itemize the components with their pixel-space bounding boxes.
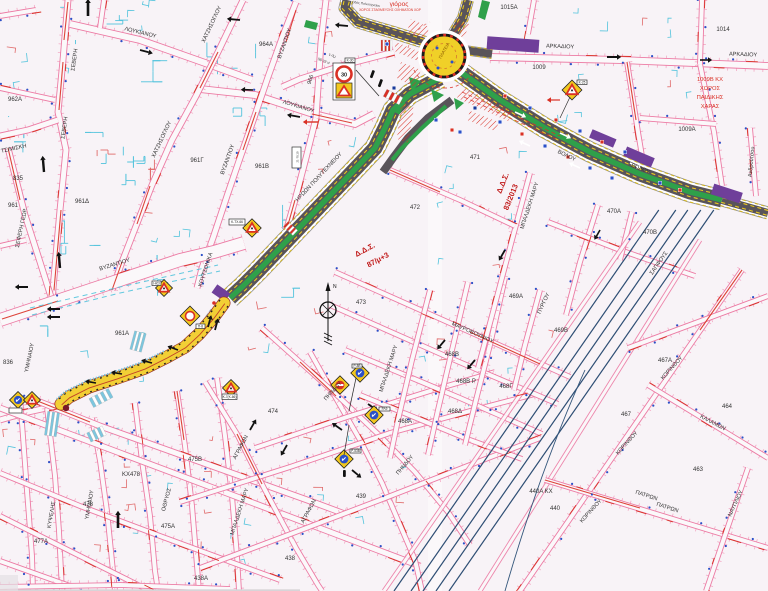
svg-text:ΚΧ478: ΚΧ478 [122,472,141,478]
svg-text:1015Α: 1015Α [500,5,517,11]
svg-text:1009Α: 1009Α [678,127,695,133]
svg-text:961Β: 961Β [255,164,269,170]
svg-text:ΑΡΚΑΔΙΟΥ: ΑΡΚΑΔΙΟΥ [729,52,758,59]
svg-text:N: N [333,284,337,290]
svg-text:464: 464 [722,404,733,410]
svg-text:468Δ: 468Δ [448,409,462,415]
svg-text:470Β: 470Β [643,230,657,236]
svg-text:Κ-30: Κ-30 [347,58,354,62]
svg-text:961Α: 961Α [115,331,129,337]
svg-text:961: 961 [8,203,19,209]
svg-text:Ρ-8Β: Ρ-8Β [353,364,360,368]
svg-text:468Β: 468Β [445,352,459,358]
svg-text:471: 471 [470,155,481,161]
svg-text:475Β: 475Β [188,457,202,463]
svg-text:ΧΩΡΟΣ: ΧΩΡΟΣ [700,86,721,92]
svg-text:1014: 1014 [716,27,730,33]
svg-text:467Α: 467Α [658,358,672,364]
svg-text:Ι-ΗΣΙ: Ι-ΗΣΙ [153,281,160,285]
svg-text:836: 836 [3,360,14,366]
svg-text:1009Β ΚΧ: 1009Β ΚΧ [697,77,723,83]
svg-text:Κ-25: Κ-25 [579,80,586,84]
svg-text:1009: 1009 [532,65,546,71]
svg-text:Π-8: Π-8 [198,324,203,328]
svg-text:964Α: 964Α [259,42,273,48]
svg-text:472: 472 [410,205,421,211]
svg-text:468Γ: 468Γ [499,384,513,390]
svg-text:835: 835 [13,176,24,182]
svg-text:477Α: 477Α [34,539,48,545]
svg-text:463: 463 [693,467,704,473]
svg-text:439: 439 [356,494,367,500]
svg-text:30: 30 [341,73,347,79]
svg-text:440Α ΚΧ: 440Α ΚΧ [529,489,552,495]
svg-text:ΧΩΡΟΣ ΣΤΑΘΜΕΥΣΗΣ ΟΧΗΜΑΤΩΝ ΧΩΡ: ΧΩΡΟΣ ΣΤΑΘΜΕΥΣΗΣ ΟΧΗΜΑΤΩΝ ΧΩΡ [359,8,422,12]
svg-text:438Α: 438Α [194,576,208,582]
svg-text:961Δ: 961Δ [75,199,89,205]
svg-text:469Α: 469Α [509,294,523,300]
svg-text:962Α: 962Α [8,97,22,103]
svg-text:468Β Ρ: 468Β Ρ [456,379,476,385]
svg-text:470Α: 470Α [607,209,621,215]
svg-text:Κ-ΤΧ-66: Κ-ΤΧ-66 [231,220,243,224]
svg-text:961Γ: 961Γ [190,158,204,164]
svg-text:ΠΑΙΔΙΚΗΣ: ΠΑΙΔΙΚΗΣ [697,95,724,101]
svg-text:473: 473 [356,300,367,306]
svg-text:469Β: 469Β [554,328,568,334]
svg-text:475Α: 475Α [161,524,175,530]
svg-text:474: 474 [268,409,279,415]
svg-text:Κ-7(Κ-66): Κ-7(Κ-66) [223,395,237,399]
svg-text:438: 438 [285,556,296,562]
svg-text:467: 467 [621,412,632,418]
svg-text:ΡΛ9: ΡΛ9 [382,407,388,411]
svg-text:440: 440 [550,506,561,512]
svg-text:Ρ-53Β: Ρ-53Β [351,449,360,453]
svg-text:468Α: 468Α [398,419,412,425]
svg-text:γιόρος: γιόρος [390,0,409,8]
svg-text:ΧΑΡΑΣ: ΧΑΡΑΣ [701,104,720,110]
svg-text:ΑΡΚΑΔΙΟΥ: ΑΡΚΑΔΙΟΥ [546,44,575,51]
svg-text:21-79,19: 21-79,19 [296,151,300,162]
